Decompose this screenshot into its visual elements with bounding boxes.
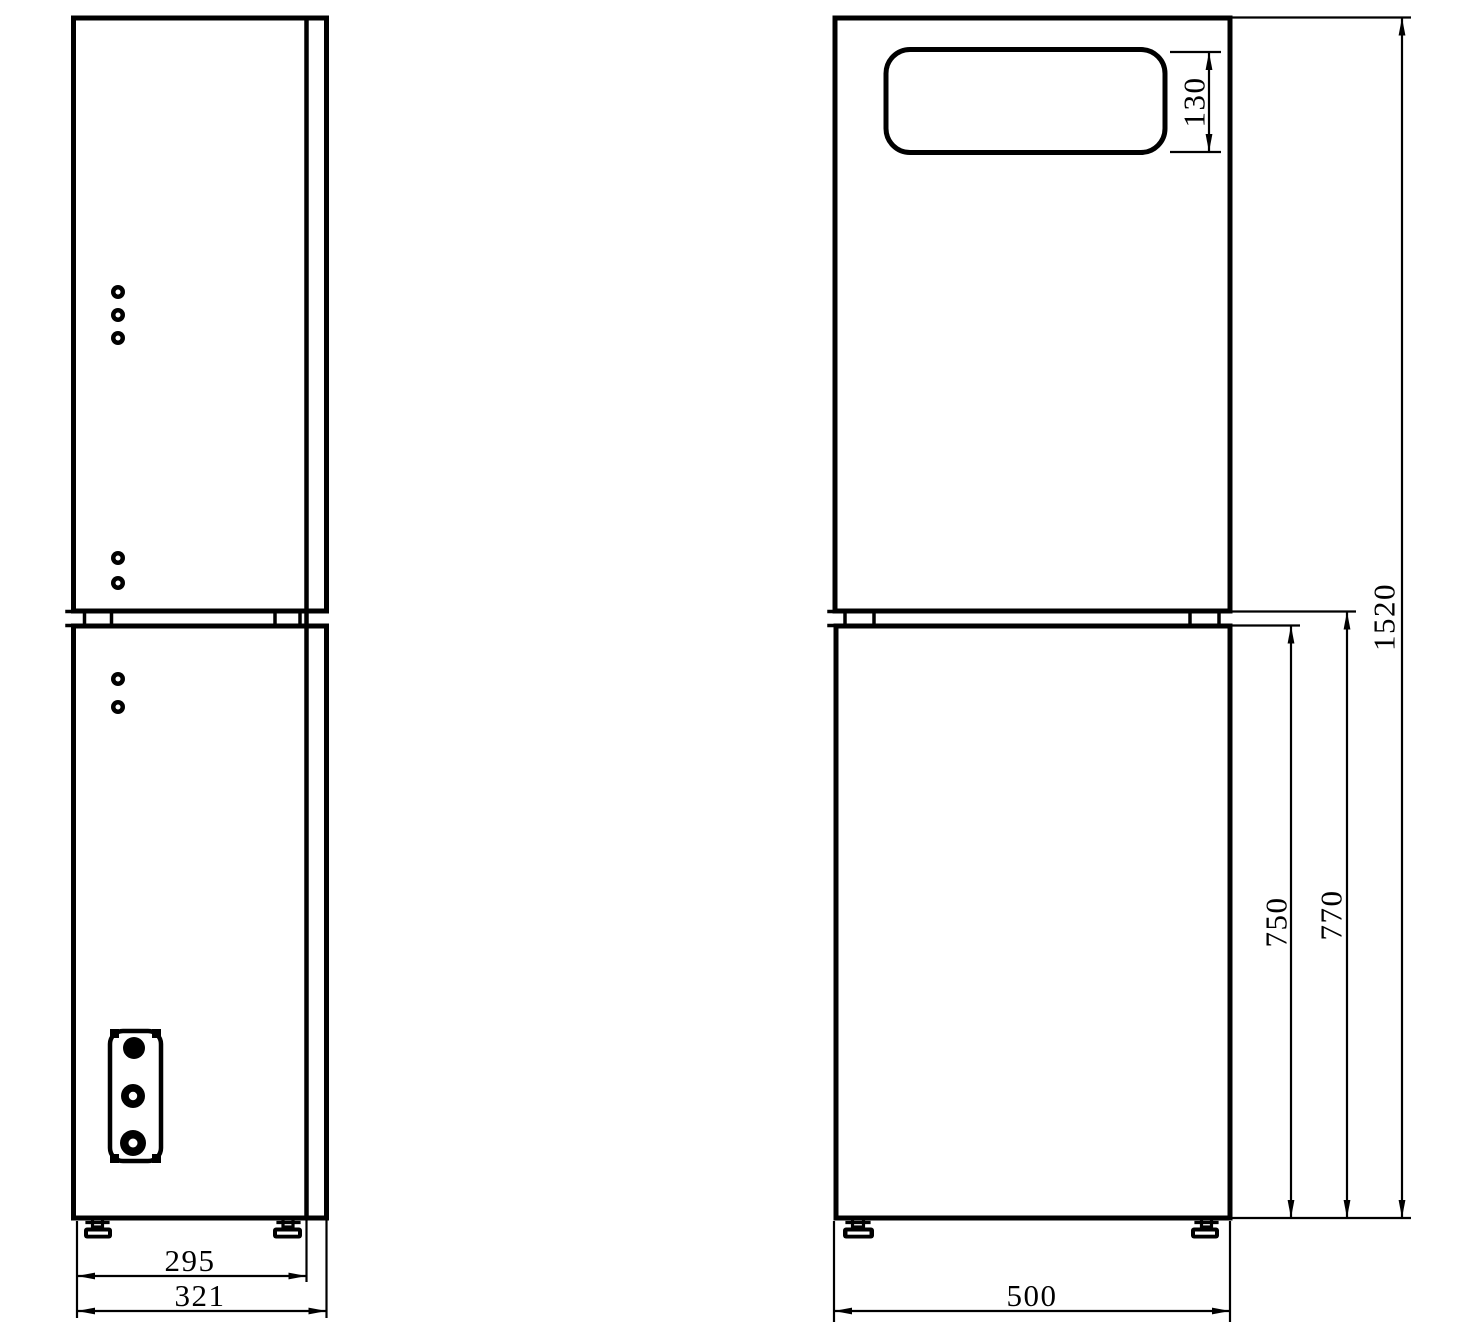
- vent-hole: [111, 576, 125, 590]
- cad-drawing: 295 321: [0, 0, 1480, 1344]
- front-slot-opening: [886, 50, 1165, 153]
- side-foot-left: [84, 1218, 112, 1239]
- dimension-side-depth-label: 295: [165, 1243, 216, 1278]
- side-view: 295 321: [67, 18, 327, 1318]
- side-vent-holes: [111, 285, 125, 714]
- drawing-sheet: 295 321: [0, 0, 1480, 1344]
- vent-hole: [111, 308, 125, 322]
- vent-hole: [111, 672, 125, 686]
- side-connector-plate: [110, 1029, 161, 1163]
- dimension-overall-height: 1520: [1367, 18, 1403, 1219]
- dimension-side-depth-overall-label: 321: [175, 1278, 226, 1313]
- vent-hole: [111, 551, 125, 565]
- dimension-slot-height-label: 130: [1177, 77, 1212, 128]
- foot-pad-line: [88, 1232, 108, 1235]
- front-foot-right: [1191, 1218, 1219, 1239]
- dimension-lower-height-overall: 770: [1314, 612, 1349, 1219]
- dimension-front-width-label: 500: [1007, 1278, 1058, 1313]
- foot-pad-line: [277, 1232, 298, 1235]
- plate-port-middle: [121, 1084, 145, 1108]
- plate-port-bottom: [120, 1130, 146, 1156]
- front-joint-strip: [829, 612, 1230, 626]
- dimension-slot-height: 130: [1170, 52, 1221, 152]
- foot-pad-line: [1195, 1232, 1215, 1235]
- front-lower-cabinet: [836, 626, 1230, 1218]
- front-view: 130 750 770 1520 500: [829, 18, 1411, 1323]
- side-foot-right: [273, 1218, 302, 1239]
- vent-hole: [111, 331, 125, 345]
- side-joint-strip: [67, 612, 327, 626]
- vent-hole: [111, 285, 125, 299]
- dimension-overall-height-label: 1520: [1367, 583, 1402, 651]
- front-upper-cabinet: [835, 18, 1230, 611]
- dimension-lower-height-label: 750: [1259, 897, 1294, 948]
- dimension-lower-height: 750: [1259, 626, 1294, 1219]
- vent-hole: [111, 700, 125, 714]
- front-foot-left: [843, 1218, 874, 1239]
- plate-port-top: [123, 1037, 145, 1059]
- dimension-front-width: 500: [834, 1221, 1230, 1322]
- foot-pad-line: [848, 1232, 870, 1235]
- dimension-lower-height-overall-label: 770: [1314, 890, 1349, 941]
